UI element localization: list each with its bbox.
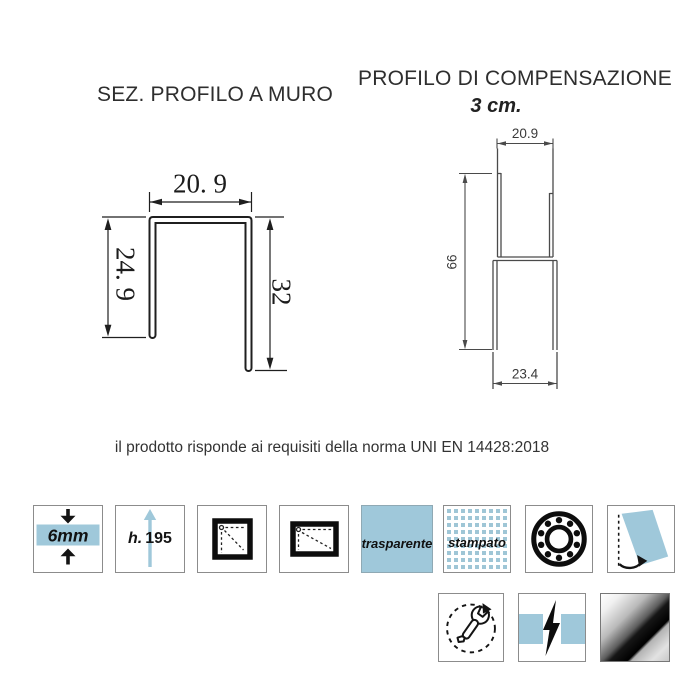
easy-assembly-icon — [438, 593, 504, 662]
bearing-balls — [538, 517, 580, 561]
quick-fix-icon — [518, 593, 586, 662]
door-panel — [622, 510, 669, 565]
wall-profile-left-height-label: 24. 9 — [111, 247, 141, 301]
product-spec-sheet: SEZ. PROFILO A MURO PROFILO DI COMPENSAZ… — [0, 0, 700, 700]
transparent-glass-icon: trasparente — [361, 505, 433, 573]
dim-comp-width-bottom — [493, 381, 557, 385]
comp-profile-width-top-label: 20.9 — [512, 126, 538, 141]
right-diagram-title: PROFILO DI COMPENSAZIONE — [358, 67, 640, 91]
pivot-door-icon — [607, 505, 675, 573]
compensation-profile-outline — [493, 149, 557, 390]
right-panel-block — [561, 614, 585, 644]
dim-comp-height — [459, 174, 492, 350]
compensation-profile-diagram: 20.9 66 23.4 — [443, 118, 575, 395]
bearing-icon — [525, 505, 593, 573]
comp-profile-height-label: 66 — [445, 254, 460, 269]
right-diagram-subtitle: 3 cm. — [446, 95, 546, 118]
chrome-finish-icon — [600, 593, 670, 662]
wall-profile-right-height-label: 32 — [267, 279, 297, 306]
printed-glass-label: stampato — [448, 535, 506, 550]
height-label: h.195 — [128, 530, 172, 547]
wall-profile-width-label: 20. 9 — [173, 168, 227, 198]
wall-profile-outline — [150, 217, 252, 371]
rectangular-panel-icon — [279, 505, 349, 573]
glass-thickness-label: 6mm — [48, 526, 89, 546]
wall-profile-diagram: 20. 9 24. 9 32 — [95, 160, 300, 382]
transparent-glass-label: trasparente — [362, 536, 433, 551]
arrow-up-icon — [61, 549, 76, 565]
left-panel-block — [519, 614, 543, 644]
lightning-icon — [543, 600, 560, 656]
glass-thickness-icon: 6mm — [33, 505, 103, 573]
height-icon: h.195 — [115, 505, 185, 573]
comp-profile-width-bottom-label: 23.4 — [512, 367, 539, 382]
printed-glass-icon: stampato — [443, 505, 511, 573]
left-diagram-title: SEZ. PROFILO A MURO — [97, 83, 287, 107]
arrow-down-icon — [61, 509, 76, 524]
compliance-text: il prodotto risponde ai requisiti della … — [0, 439, 664, 457]
square-panel-icon — [197, 505, 267, 573]
